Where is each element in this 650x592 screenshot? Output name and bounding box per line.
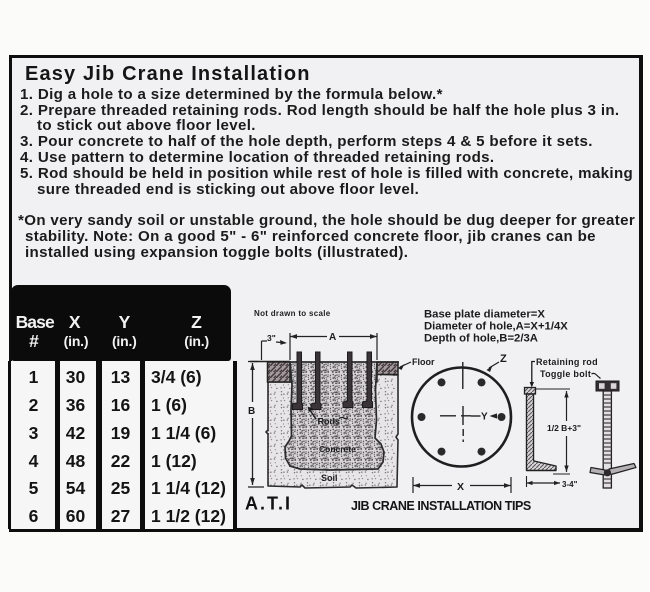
svg-text:Retaining rod: Retaining rod — [536, 357, 598, 367]
svg-text:1/2 B+3": 1/2 B+3" — [547, 423, 581, 433]
svg-text:Depth of hole,B=2/3A: Depth of hole,B=2/3A — [424, 333, 538, 345]
svg-text:Soil: Soil — [321, 473, 338, 483]
svg-text:A: A — [329, 332, 336, 343]
svg-text:3": 3" — [267, 333, 276, 343]
svg-text:Y: Y — [481, 412, 488, 423]
svg-text:A.T.I: A.T.I — [245, 494, 292, 514]
svg-text:Not drawn to scale: Not drawn to scale — [254, 309, 331, 318]
svg-text:Floor: Floor — [412, 357, 435, 367]
svg-text:Diameter of hole,A=X+1/4X: Diameter of hole,A=X+1/4X — [424, 321, 568, 333]
svg-text:Base plate diameter=X: Base plate diameter=X — [424, 309, 545, 321]
svg-text:Rods: Rods — [318, 417, 341, 427]
svg-text:Z: Z — [500, 353, 507, 365]
svg-text:3-4": 3-4" — [562, 480, 578, 489]
svg-text:JIB CRANE INSTALLATION TIPS: JIB CRANE INSTALLATION TIPS — [351, 499, 531, 513]
svg-text:B: B — [248, 406, 255, 417]
svg-text:Concrete: Concrete — [319, 444, 356, 454]
svg-text:Toggle bolt: Toggle bolt — [540, 369, 591, 379]
svg-text:X: X — [457, 481, 464, 493]
